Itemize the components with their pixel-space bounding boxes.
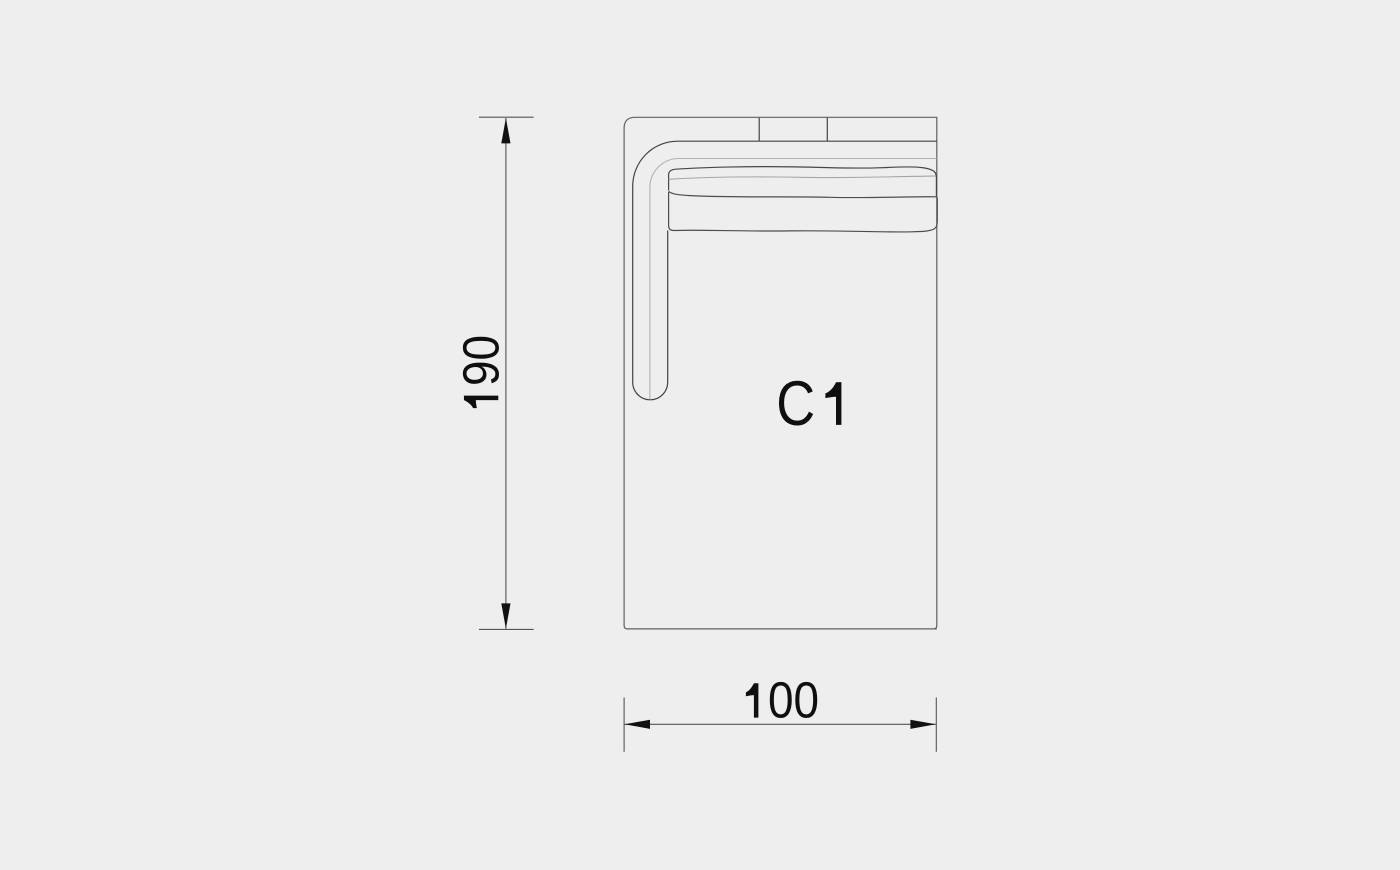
svg-text:C: C — [776, 369, 815, 439]
svg-text:90: 90 — [453, 335, 510, 386]
svg-text:00: 00 — [768, 672, 819, 729]
